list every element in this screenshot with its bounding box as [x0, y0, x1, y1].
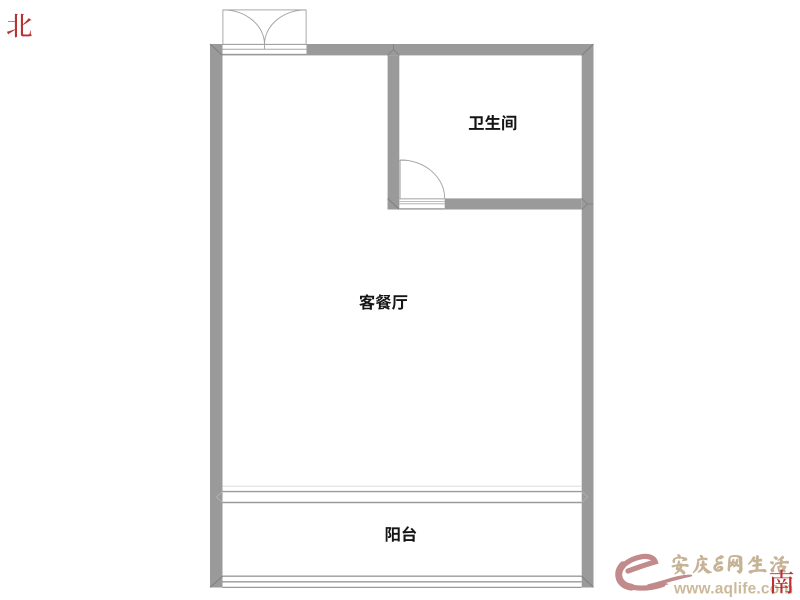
svg-text:www.aqlife.com: www.aqlife.com [673, 581, 793, 598]
